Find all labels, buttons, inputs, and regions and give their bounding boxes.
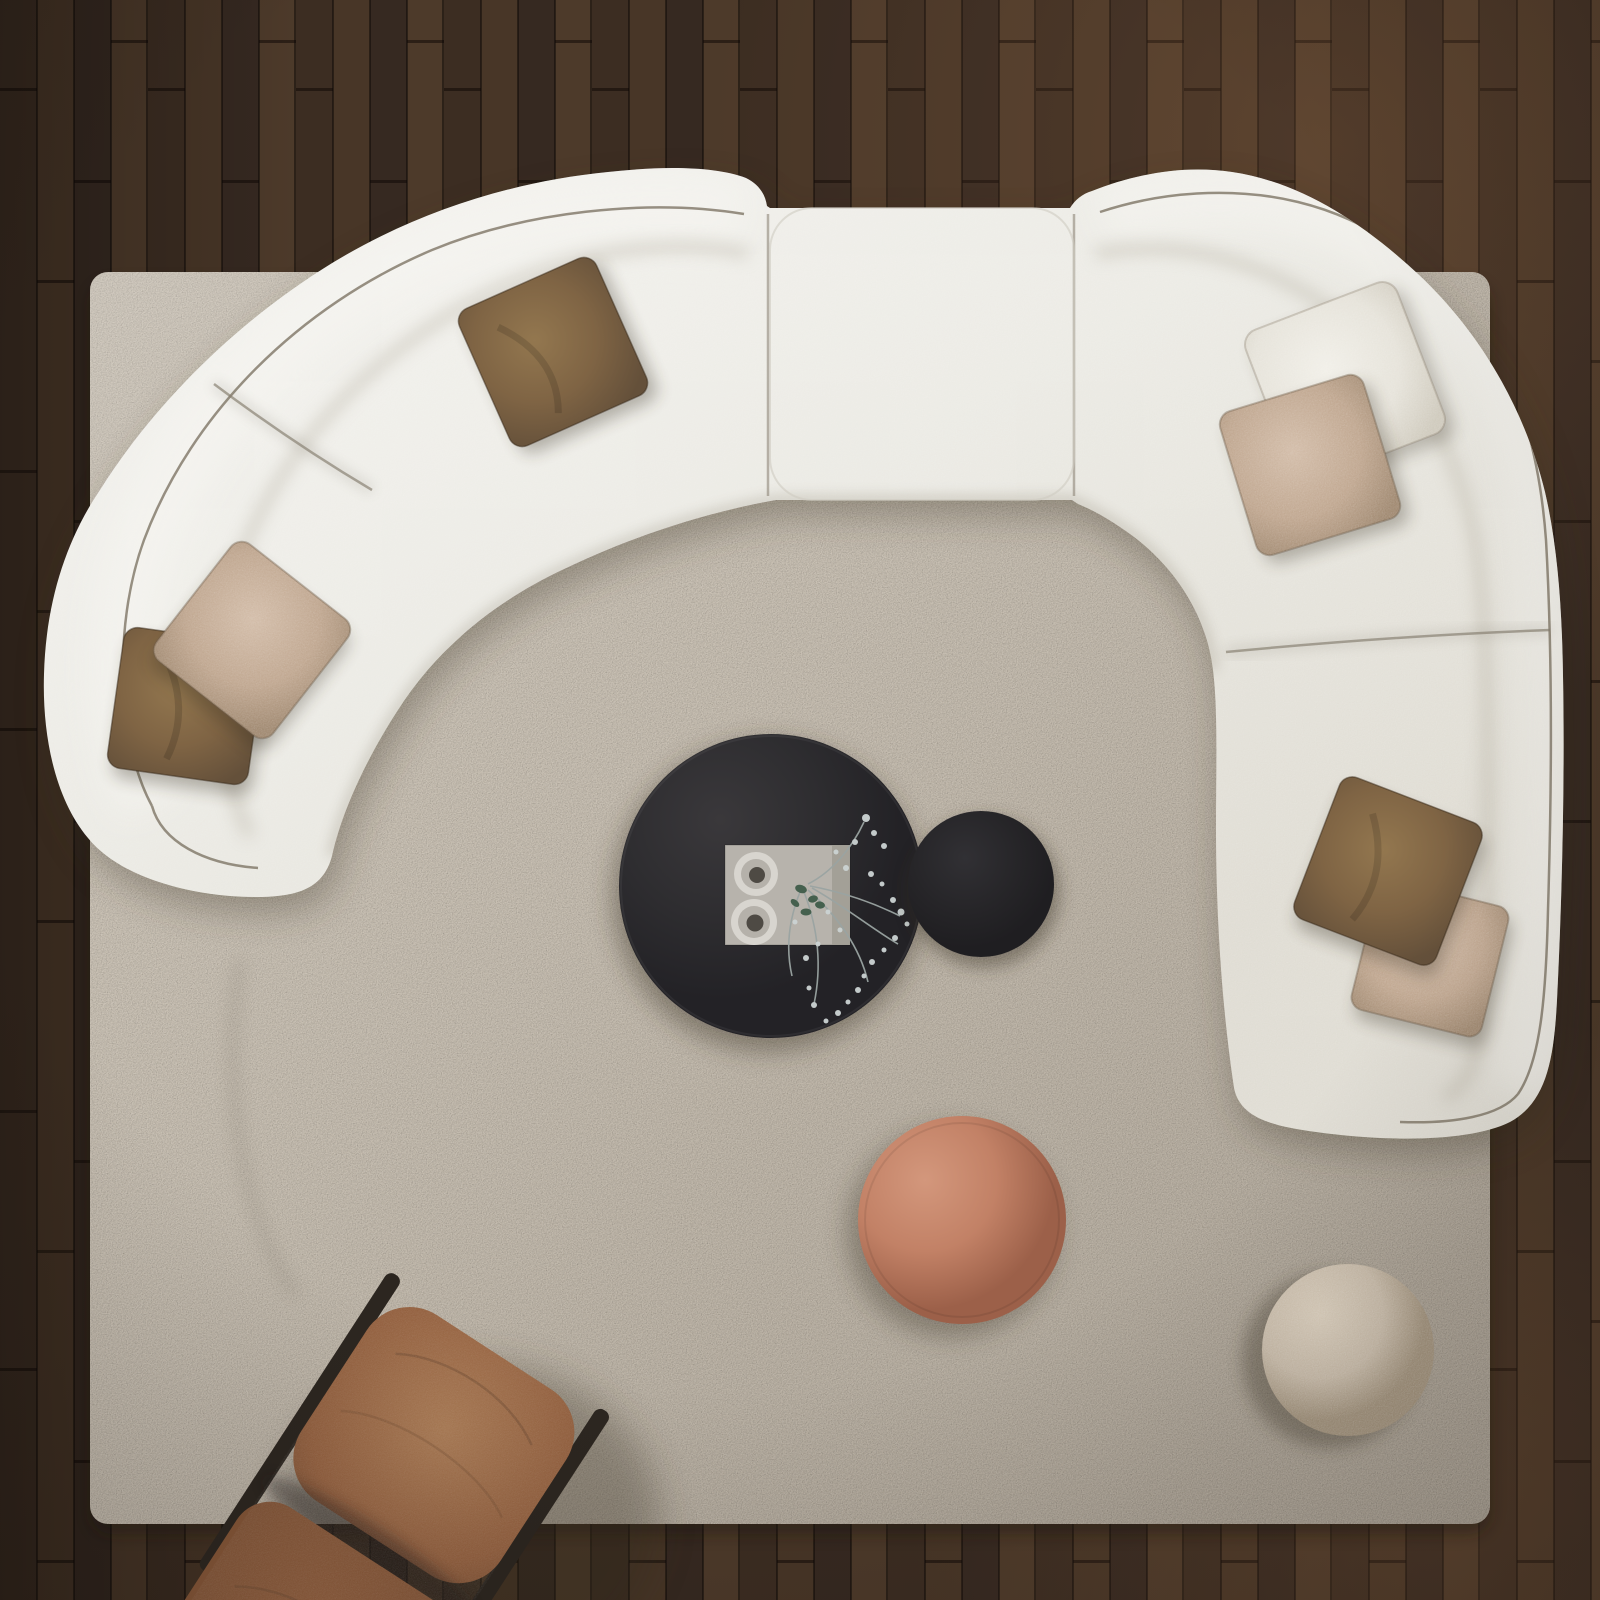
scene-canvas	[0, 0, 1600, 1600]
living-room-render	[0, 0, 1600, 1600]
vignette-overlay	[0, 0, 1600, 1600]
